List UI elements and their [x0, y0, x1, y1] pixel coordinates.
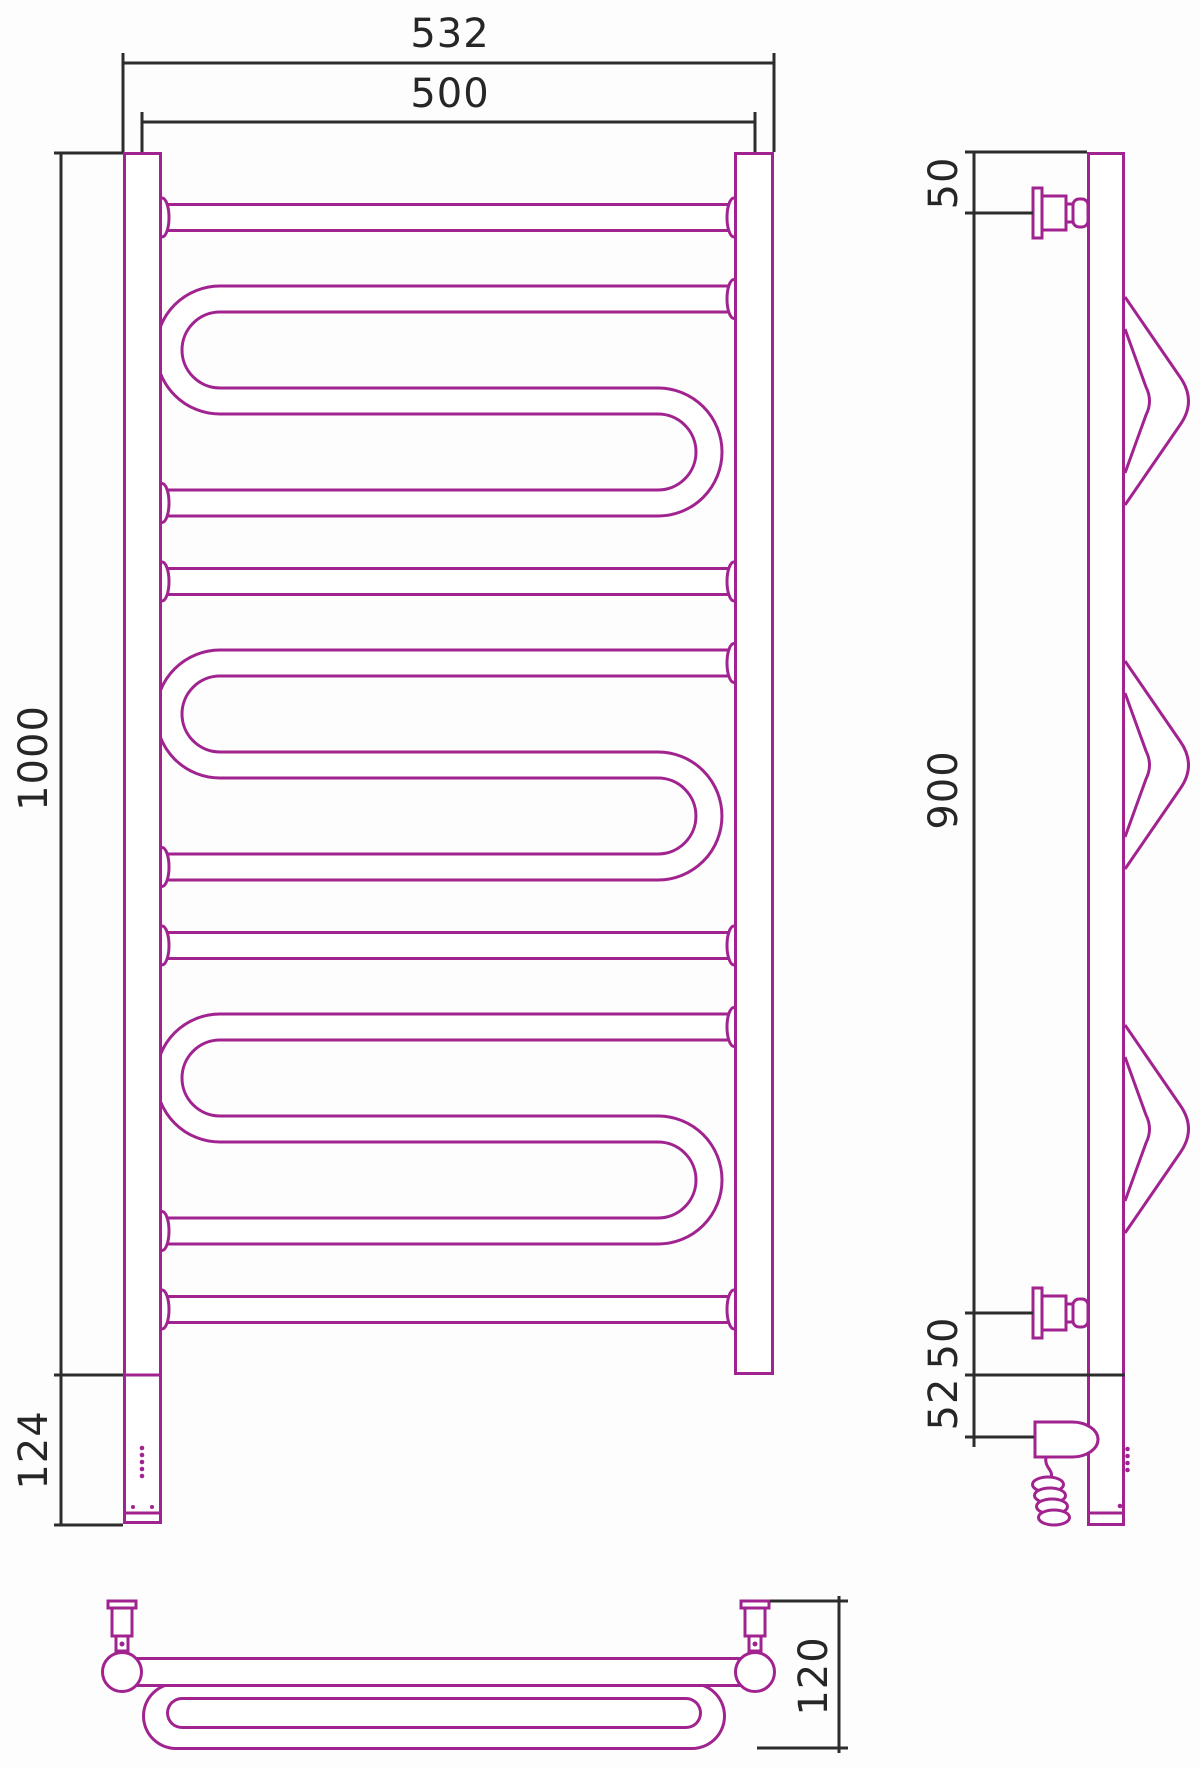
label-heater-offset: 52 — [921, 1378, 967, 1431]
loop-profile-3 — [1125, 1025, 1189, 1233]
wall-bracket-bottom — [1033, 1288, 1088, 1338]
side-tube — [1089, 154, 1124, 1525]
heater-box — [1035, 1422, 1098, 1457]
towel-rail-drawing: 532 500 1000 124 50 900 50 52 120 — [0, 0, 1200, 1769]
serpentine-coil-1 — [162, 299, 734, 503]
label-depth: 120 — [791, 1636, 837, 1715]
label-heater-extension: 124 — [11, 1410, 57, 1489]
side-view — [1033, 154, 1189, 1526]
label-bottom-bracket-offset: 50 — [921, 1317, 967, 1370]
right-rail — [736, 154, 773, 1374]
serpentine-coil-3 — [162, 1027, 734, 1231]
mount-screw-dots — [120, 1642, 758, 1647]
label-top-bracket-offset: 50 — [921, 157, 967, 210]
label-overall-width: 532 — [410, 11, 489, 57]
power-cord — [1046, 1457, 1052, 1478]
label-center-width: 500 — [410, 71, 489, 117]
loop-profile-2 — [1125, 661, 1189, 869]
serpentine-coil-2 — [162, 663, 734, 867]
technical-drawing-canvas: 532 500 1000 124 50 900 50 52 120 — [0, 0, 1200, 1769]
power-cord-coil — [1033, 1477, 1070, 1525]
wall-bracket-top — [1033, 188, 1088, 238]
label-bracket-span: 900 — [921, 750, 967, 829]
bottom-view — [103, 1601, 775, 1716]
front-view — [123, 154, 773, 1523]
label-height: 1000 — [11, 705, 57, 811]
loop-profile-1 — [1125, 297, 1189, 505]
rail-section-left — [103, 1653, 142, 1692]
rail-section-right — [736, 1653, 775, 1692]
left-rail — [125, 154, 161, 1523]
